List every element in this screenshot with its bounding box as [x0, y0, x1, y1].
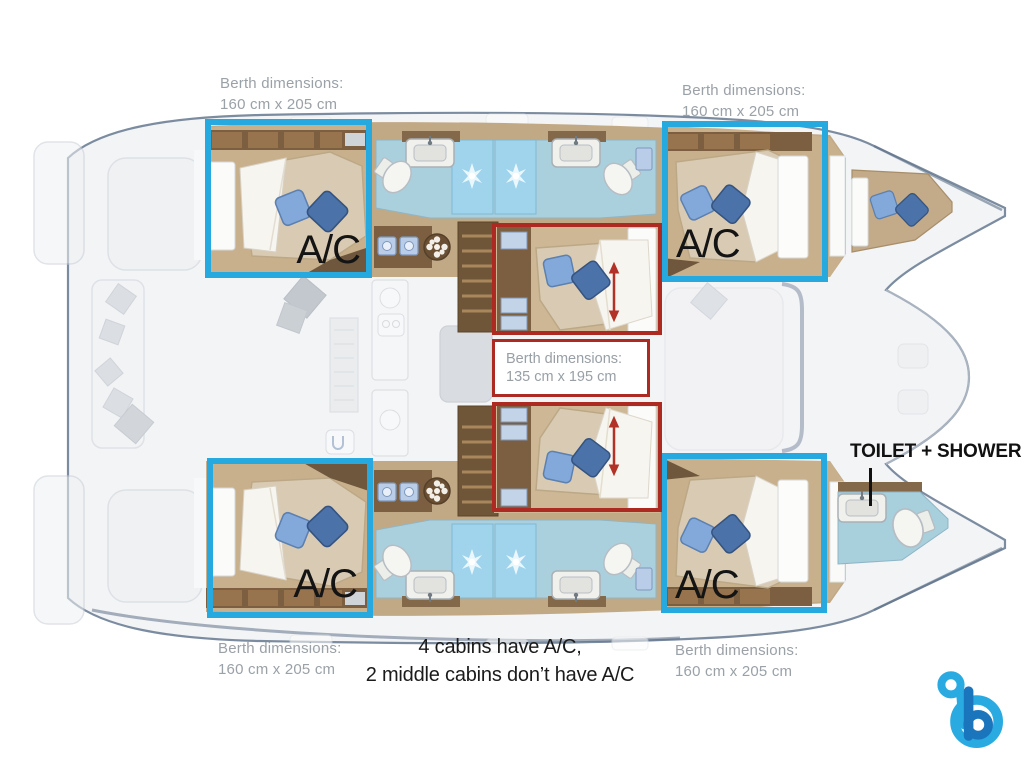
ac-label: A/C: [675, 565, 739, 605]
ac-label: A/C: [293, 564, 357, 604]
footnote-line-2: 2 middle cabins don’t have A/C: [330, 661, 670, 689]
berth-dimensions-label: Berth dimensions:: [506, 350, 647, 368]
berth-caption-bottom-right: Berth dimensions: 160 cm x 205 cm: [675, 640, 798, 682]
brand-logo-b: [926, 664, 1008, 760]
berth-dimensions-value: 160 cm x 205 cm: [218, 659, 341, 680]
berth-dimensions-value: 135 cm x 195 cm: [506, 368, 647, 386]
catamaran-layout-infographic: A/C A/C A/C A/C Berth dimensions: 135 cm…: [0, 0, 1024, 767]
ac-cabin-box-bottom-left: A/C: [207, 458, 373, 618]
berth-caption-top-right: Berth dimensions: 160 cm x 205 cm: [682, 80, 805, 122]
berth-dimensions-label: Berth dimensions:: [682, 80, 805, 101]
berth-dimensions-value: 160 cm x 205 cm: [682, 101, 805, 122]
berth-dimensions-label: Berth dimensions:: [218, 638, 341, 659]
footnote-line-1: 4 cabins have A/C,: [330, 633, 670, 661]
middle-cabin-box-top: [492, 223, 662, 335]
berth-dimensions-label: Berth dimensions:: [220, 73, 343, 94]
logo-b-bowl: [968, 714, 989, 735]
toilet-shower-pointer-line: [869, 468, 872, 506]
ac-footnote: 4 cabins have A/C, 2 middle cabins don’t…: [330, 633, 670, 689]
ac-cabin-box-top-right: A/C: [662, 121, 828, 282]
berth-caption-top-left: Berth dimensions: 160 cm x 205 cm: [220, 73, 343, 115]
ac-label: A/C: [296, 230, 360, 270]
berth-caption-bottom-left: Berth dimensions: 160 cm x 205 cm: [218, 638, 341, 680]
berth-dimensions-value: 160 cm x 205 cm: [220, 94, 343, 115]
ac-cabin-box-bottom-right: A/C: [661, 453, 827, 613]
toilet-shower-label: TOILET + SHOWER: [850, 441, 1021, 463]
ac-label: A/C: [676, 224, 740, 264]
middle-cabin-box-bottom: [492, 402, 662, 512]
berth-dimensions-value: 160 cm x 205 cm: [675, 661, 798, 682]
berth-dimensions-label: Berth dimensions:: [675, 640, 798, 661]
logo-connector: [960, 690, 964, 725]
middle-berth-dimensions-box: Berth dimensions: 135 cm x 195 cm: [492, 339, 650, 397]
ac-cabin-box-top-left: A/C: [205, 119, 372, 278]
